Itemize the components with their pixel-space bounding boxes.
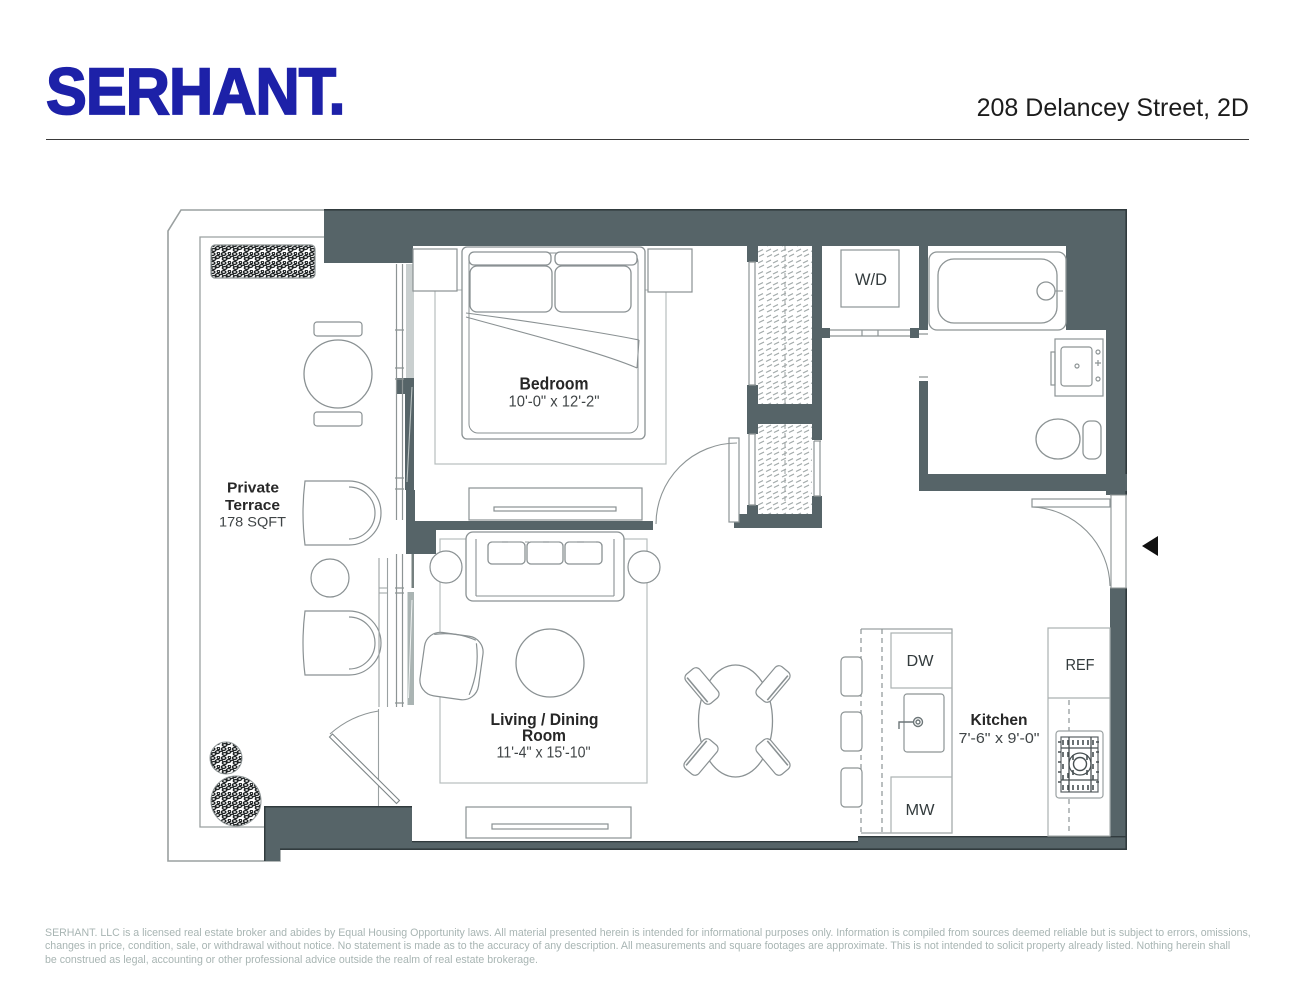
svg-text:Terrace: Terrace xyxy=(225,498,280,514)
svg-text:Room: Room xyxy=(522,726,566,745)
svg-text:10'-0" x 12'-2": 10'-0" x 12'-2" xyxy=(509,394,600,411)
svg-text:Private: Private xyxy=(227,481,279,497)
svg-text:MW: MW xyxy=(906,802,936,819)
svg-text:DW: DW xyxy=(907,653,935,670)
svg-text:11'-4" x 15'-10": 11'-4" x 15'-10" xyxy=(497,745,591,762)
svg-text:Bedroom: Bedroom xyxy=(520,374,589,394)
svg-text:178 SQFT: 178 SQFT xyxy=(219,514,286,530)
svg-text:W/D: W/D xyxy=(855,270,887,289)
svg-text:REF: REF xyxy=(1066,657,1095,674)
svg-text:7'-6" x 9'-0": 7'-6" x 9'-0" xyxy=(959,730,1040,747)
svg-text:Kitchen: Kitchen xyxy=(971,712,1028,729)
